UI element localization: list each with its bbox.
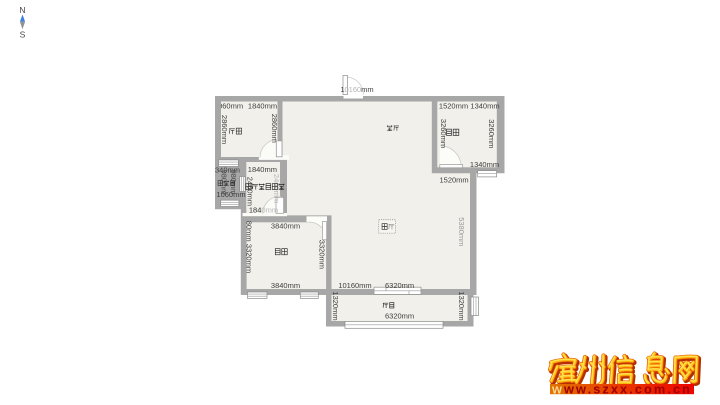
svg-text:1320mm: 1320mm <box>457 291 466 320</box>
svg-text:1320mm: 1320mm <box>331 291 340 320</box>
svg-text:N: N <box>19 5 25 15</box>
svg-text:1520mm: 1520mm <box>440 176 469 185</box>
svg-text:1340mm: 1340mm <box>470 160 499 169</box>
svg-text:6320mm: 6320mm <box>385 281 414 290</box>
svg-text:w: w <box>551 381 562 396</box>
svg-text:1340mm: 1340mm <box>470 101 499 110</box>
svg-text:3840mm: 3840mm <box>271 222 300 231</box>
svg-text:1840mm: 1840mm <box>248 101 277 110</box>
svg-text:10160mm: 10160mm <box>340 85 373 94</box>
svg-text:3260mm: 3260mm <box>487 119 496 148</box>
svg-text:1840mm: 1840mm <box>249 206 278 215</box>
svg-text:2860mm: 2860mm <box>270 114 279 143</box>
svg-text:6320mm: 6320mm <box>385 311 414 320</box>
svg-text:2460mm: 2460mm <box>272 174 281 203</box>
svg-text:1520mm: 1520mm <box>439 101 468 110</box>
svg-text:980mm: 980mm <box>220 169 229 194</box>
svg-text:S: S <box>20 30 26 40</box>
svg-text:3840mm: 3840mm <box>271 281 300 290</box>
svg-text:3320mm: 3320mm <box>244 244 253 273</box>
svg-text:www.szxx.com.cn: www.szxx.com.cn <box>551 381 690 396</box>
svg-text:3320mm: 3320mm <box>318 240 327 269</box>
svg-text:5380mm: 5380mm <box>457 217 466 246</box>
svg-text:2460mm: 2460mm <box>245 177 254 206</box>
svg-text:80mm: 80mm <box>245 221 254 242</box>
svg-text:2860mm: 2860mm <box>220 115 229 144</box>
svg-text:1840mm: 1840mm <box>248 165 277 174</box>
svg-text:10160mm: 10160mm <box>338 281 371 290</box>
